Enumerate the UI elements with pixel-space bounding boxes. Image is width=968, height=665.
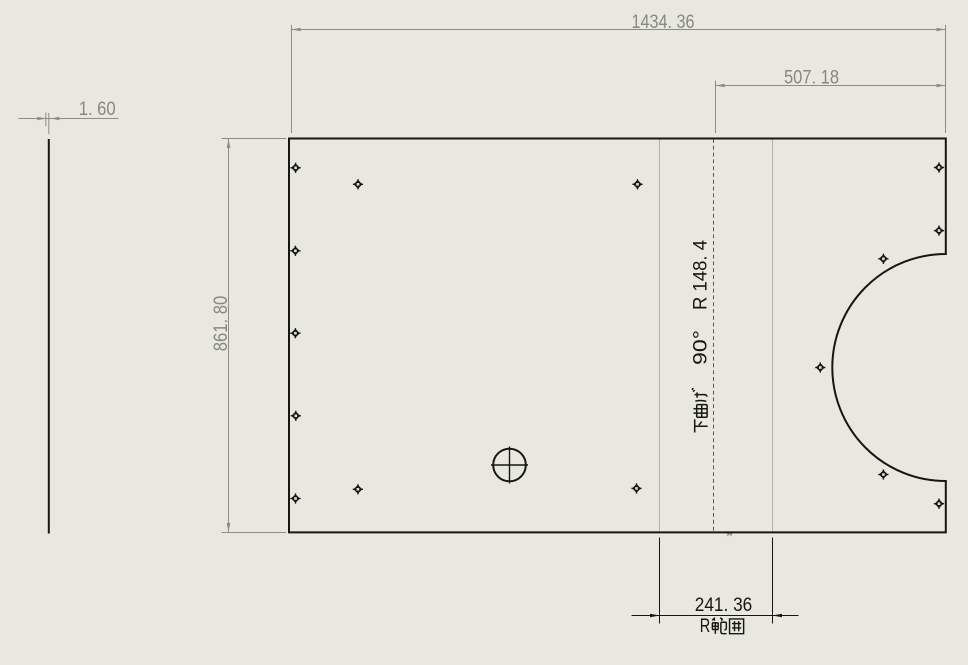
svg-text:R: R bbox=[700, 616, 711, 637]
svg-text:R 148. 4: R 148. 4 bbox=[691, 240, 712, 310]
svg-text:507. 18: 507. 18 bbox=[784, 68, 839, 89]
svg-text:241. 36: 241. 36 bbox=[695, 595, 753, 616]
svg-text:1. 60: 1. 60 bbox=[79, 99, 116, 120]
svg-text:1434. 36: 1434. 36 bbox=[632, 12, 695, 33]
svg-text:861. 80: 861. 80 bbox=[211, 296, 232, 352]
svg-text:90°: 90° bbox=[691, 330, 712, 365]
